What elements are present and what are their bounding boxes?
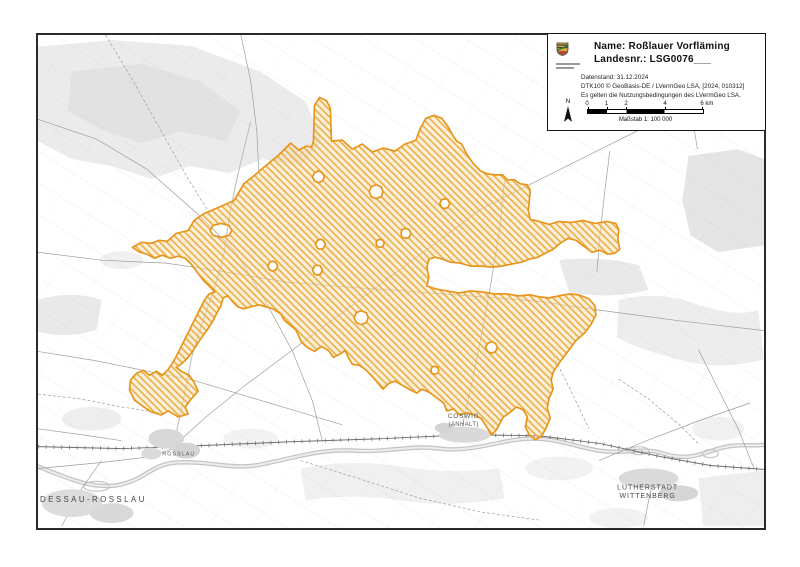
logo-text-line	[556, 67, 574, 69]
area-number-line: Landesnr.: LSG0076___	[594, 53, 730, 66]
state-logo	[556, 40, 586, 69]
logo-text-line	[556, 63, 580, 65]
map-legend: Name: Roßlauer Vorfläming Landesnr.: LSG…	[547, 33, 766, 131]
city-label-coswig-line1: COSWIG	[448, 413, 480, 420]
data-date-line: Datenstand: 31.12.2024	[581, 73, 758, 82]
attribution-line: DTK100 © GeoBasis-DE / LVermGeo LSA, [20…	[581, 82, 758, 91]
city-label-dessau-rosslau: DESSAU-ROSSLAU	[40, 495, 147, 504]
north-arrow-icon	[562, 105, 574, 124]
city-label-rosslau: ROSSLAU	[162, 452, 195, 458]
scale-caption: Maßstab 1: 100 000	[587, 117, 704, 123]
north-label: N	[560, 98, 576, 105]
city-label-wittenberg-line2: WITTENBERG	[620, 493, 676, 500]
scale-bar-graphic	[587, 109, 704, 114]
legend-info: Datenstand: 31.12.2024 DTK100 © GeoBasis…	[581, 73, 758, 100]
scale-row: N 0 1 2 4 6 km Maßstab 1: 100 000	[556, 98, 758, 128]
coat-of-arms-icon	[556, 42, 569, 56]
map-sheet: DESSAU-ROSSLAU ROSSLAU COSWIG (ANHALT) L…	[0, 0, 800, 567]
north-indicator: N	[560, 98, 576, 129]
city-label-coswig-line2: (ANHALT)	[449, 422, 479, 428]
area-name-line: Name: Roßlauer Vorfläming	[594, 40, 730, 53]
city-label-wittenberg-line1: LUTHERSTADT	[617, 484, 678, 491]
scale-bar: 0 1 2 4 6 km Maßstab 1: 100 000	[587, 101, 704, 123]
